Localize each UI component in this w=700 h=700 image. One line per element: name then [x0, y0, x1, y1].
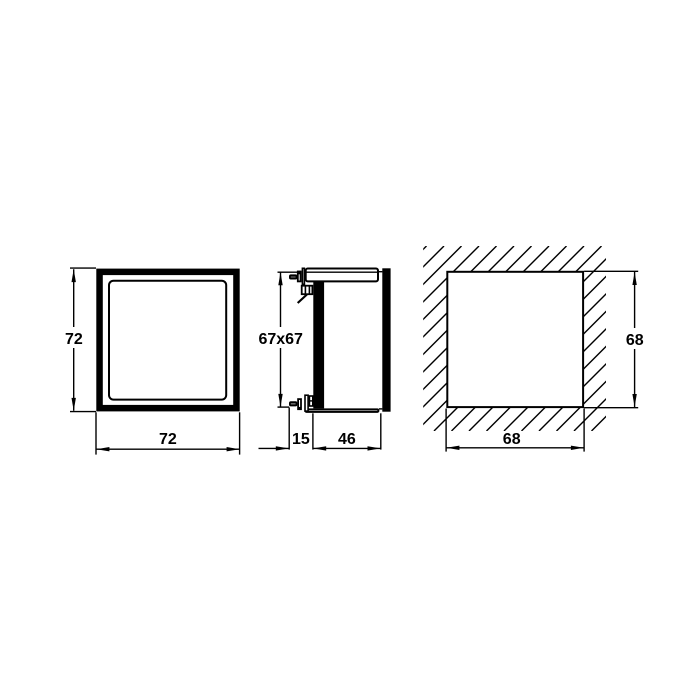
svg-text:15: 15: [292, 431, 310, 448]
svg-text:68: 68: [503, 431, 521, 448]
svg-text:68: 68: [626, 332, 644, 349]
svg-text:67x67: 67x67: [258, 331, 303, 348]
svg-text:72: 72: [65, 331, 83, 348]
svg-text:72: 72: [159, 431, 177, 448]
svg-text:46: 46: [338, 431, 356, 448]
